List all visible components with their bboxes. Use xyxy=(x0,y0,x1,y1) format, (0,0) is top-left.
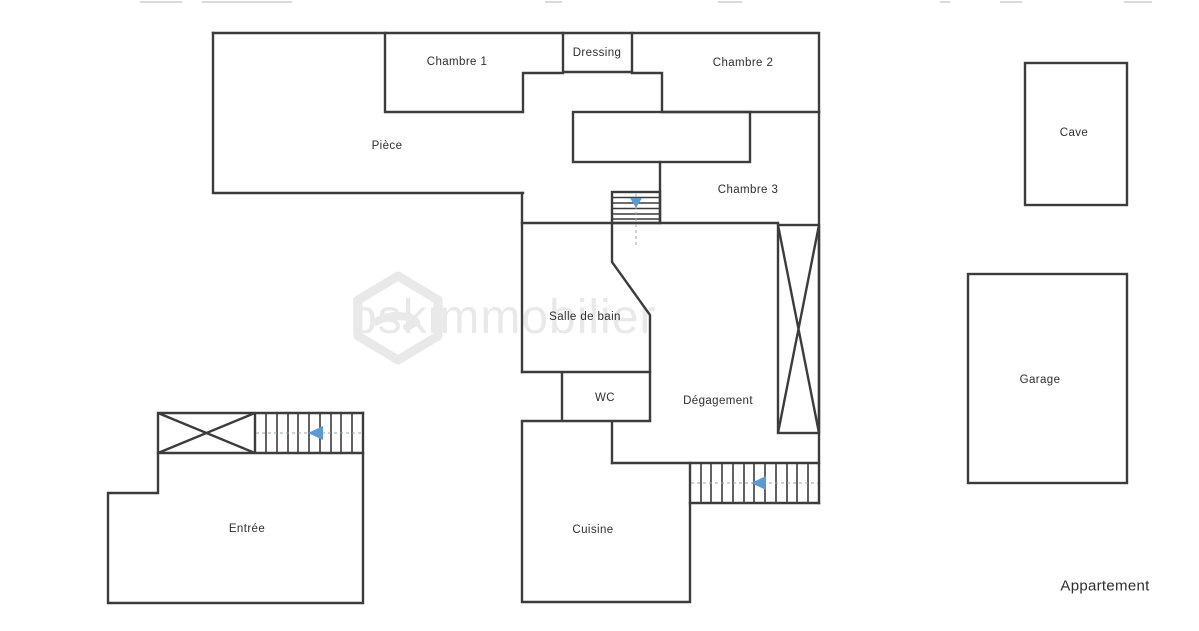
stairs-middle xyxy=(612,192,660,248)
room-label-degagement: Dégagement xyxy=(683,395,753,407)
room-label-garage: Garage xyxy=(1020,374,1061,386)
plan-caption: Appartement xyxy=(1060,578,1149,595)
degagement-x-box xyxy=(778,225,819,433)
closet-rect xyxy=(573,112,750,162)
stairs-degagement xyxy=(691,463,818,503)
entry-x-box xyxy=(158,413,255,453)
stairs-entry-arrow-left-icon xyxy=(308,426,323,440)
apartment-walls xyxy=(108,33,819,603)
room-label-chambre-3: Chambre 3 xyxy=(718,184,779,196)
floor-plan: bskimmobilier xyxy=(0,0,1199,631)
room-label-cave: Cave xyxy=(1060,127,1088,139)
room-label-entree: Entrée xyxy=(229,523,265,535)
crossed-closet-boxes xyxy=(158,225,819,453)
room-label-wc: WC xyxy=(595,392,615,404)
room-label-salle-de-bain: Salle de bain xyxy=(549,311,621,323)
annex-boxes xyxy=(968,63,1127,483)
room-label-piece: Pièce xyxy=(372,140,403,152)
room-label-chambre-2: Chambre 2 xyxy=(713,57,774,69)
room-label-cuisine: Cuisine xyxy=(572,524,613,536)
room-label-dressing: Dressing xyxy=(573,47,622,59)
stairs-entry xyxy=(256,413,362,453)
room-label-chambre-1: Chambre 1 xyxy=(427,56,488,68)
